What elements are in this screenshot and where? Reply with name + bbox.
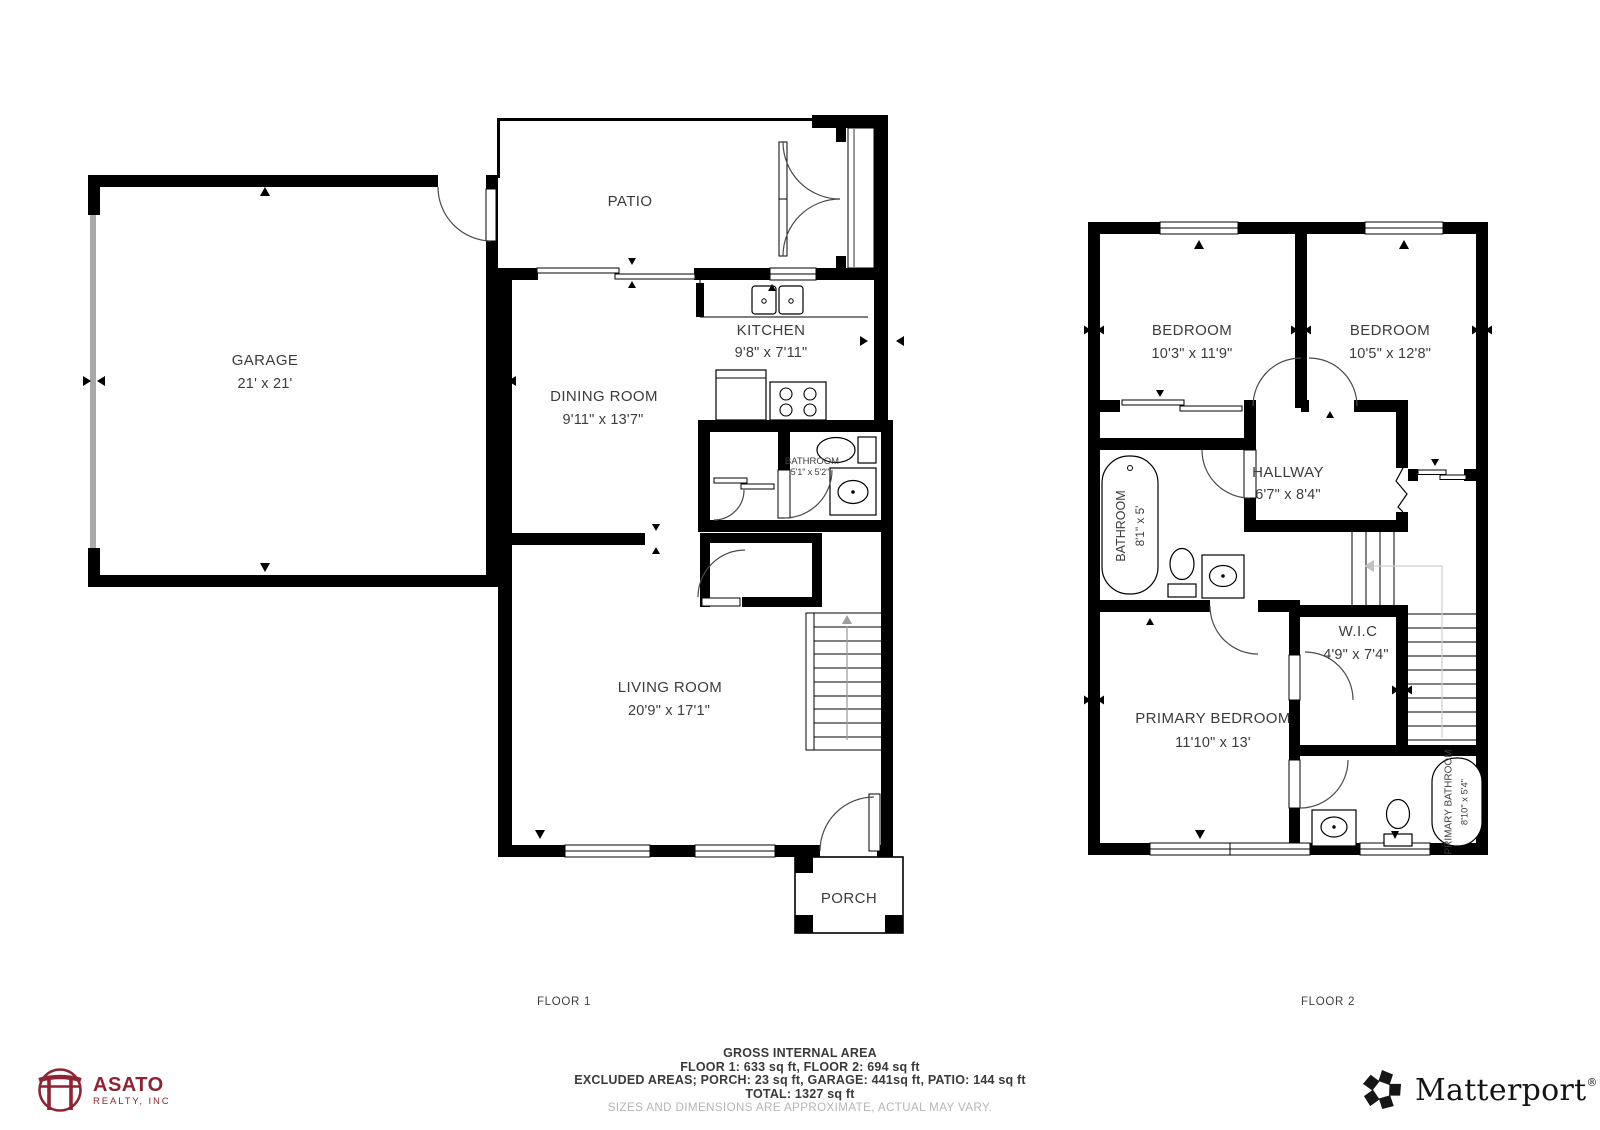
room-dims: 4'9" x 7'4" [1323,647,1389,663]
bathtub-symbol [1432,758,1482,846]
asato-logo-name: ASATO [93,1075,171,1095]
floor2-plan: BEDROOM 10'3" x 11'9" BEDROOM 10'5" x 12… [1084,222,1492,1008]
asato-logo-subtitle: REALTY, INC [93,1097,171,1107]
room-living: LIVING ROOM 20'9" x 17'1" [618,679,722,719]
room-label: PRIMARY BATHROOM [1444,749,1455,854]
area-summary-title: GROSS INTERNAL AREA [574,1047,1025,1061]
area-summary-total: TOTAL: 1327 sq ft [574,1088,1025,1102]
room-dims: 8'1" x 5' [1133,506,1147,547]
patio-sliding-door [537,268,695,279]
room-label: PRIMARY BEDROOM [1135,710,1290,727]
kitchen-window [770,268,816,280]
room-dims: 9'11" x 13'7" [562,412,643,428]
room-kitchen: KITCHEN 9'8" x 7'11" [735,322,808,361]
room-dims: 11'10" x 13' [1175,735,1251,751]
toilet-symbol [1170,549,1194,580]
room-label: DINING ROOM [550,388,658,405]
primary-bathroom-door [1289,760,1348,808]
primary-bedroom-door [1210,600,1258,654]
room-dims: 10'3" x 11'9" [1151,346,1232,362]
room-label: BATHROOM [785,456,839,467]
room-dims: 21' x 21' [238,376,293,392]
registered-mark: ® [1586,1076,1597,1089]
fridge-symbol [716,370,766,420]
room-dims: 9'8" x 7'11" [735,345,808,361]
room-porch: PORCH [821,890,877,907]
room-dining: DINING ROOM 9'11" x 13'7" [550,388,658,428]
bathroom1-door [778,470,832,518]
asato-realty-logo: ASATO REALTY, INC [34,1064,171,1118]
room-wic: W.I.C 4'9" x 7'4" [1323,623,1389,663]
bathtub-symbol [1102,456,1158,594]
room-garage: GARAGE 21' x 21' [232,352,299,392]
room-label: PORCH [821,890,877,907]
floorplan-canvas: PATIO GARAGE 21' x 21' KITCHEN 9'8" x 7'… [0,0,1600,1130]
room-primary-bedroom: PRIMARY BEDROOM 11'10" x 13' [1135,710,1290,751]
patio-storage-closet [848,128,874,268]
room-label: GARAGE [232,352,299,369]
stove-symbol [770,382,826,420]
floor1-plan: PATIO GARAGE 21' x 21' KITCHEN 9'8" x 7'… [83,115,904,1008]
torii-gate-icon [34,1064,88,1118]
hall-closet-sliding-doors [714,478,774,520]
floorplan-page: PATIO GARAGE 21' x 21' KITCHEN 9'8" x 7'… [0,0,1600,1130]
pinwheel-icon [1360,1068,1404,1112]
room-dims: 8'10" x 5'4" [1459,779,1470,825]
room-bedroom-left: BEDROOM 10'3" x 11'9" [1151,322,1232,362]
room-label: BATHROOM [1114,490,1128,561]
floor1-caption: FLOOR 1 [537,996,591,1008]
room-label: LIVING ROOM [618,679,722,696]
area-summary-floors: FLOOR 1: 633 sq ft, FLOOR 2: 694 sq ft [574,1061,1025,1075]
room-label: HALLWAY [1252,464,1324,481]
room-patio: PATIO [608,193,653,210]
room-label: PATIO [608,193,653,210]
hallway-zigzag-opening [1396,468,1408,512]
room-bedroom-right: BEDROOM 10'5" x 12'8" [1349,322,1431,362]
bedroom-closet-sliding-doors [1120,400,1244,412]
room-hallway: HALLWAY 6'7" x 8'4" [1252,464,1324,503]
matterport-wordmark: Matterport® [1415,1073,1598,1108]
room-label: W.I.C [1339,623,1378,640]
floor2-caption: FLOOR 2 [1301,996,1355,1008]
room-dims: 10'5" x 12'8" [1349,346,1431,362]
room-dims: 20'9" x 17'1" [628,703,710,719]
room-label: BEDROOM [1350,322,1430,339]
toilet-symbol [858,437,876,463]
staircase-floor1 [806,613,881,750]
front-door [820,794,880,857]
toilet-symbol [1387,800,1410,829]
room-dims: 5'1" x 5'2" [791,467,829,477]
kitchen-counter [696,280,868,317]
room-label: KITCHEN [737,322,806,339]
bathroom2-door [1202,450,1256,498]
room-dims: 6'7" x 8'4" [1255,487,1321,503]
stairwell-rail [1418,470,1466,480]
area-summary: GROSS INTERNAL AREA FLOOR 1: 633 sq ft, … [574,1047,1025,1115]
matterport-logo: Matterport® [1360,1068,1598,1112]
room-label: BEDROOM [1152,322,1232,339]
area-summary-excluded: EXCLUDED AREAS; PORCH: 23 sq ft, GARAGE:… [574,1074,1025,1088]
disclaimer-text: SIZES AND DIMENSIONS ARE APPROXIMATE, AC… [574,1101,1025,1115]
patio-french-doors [779,142,846,256]
